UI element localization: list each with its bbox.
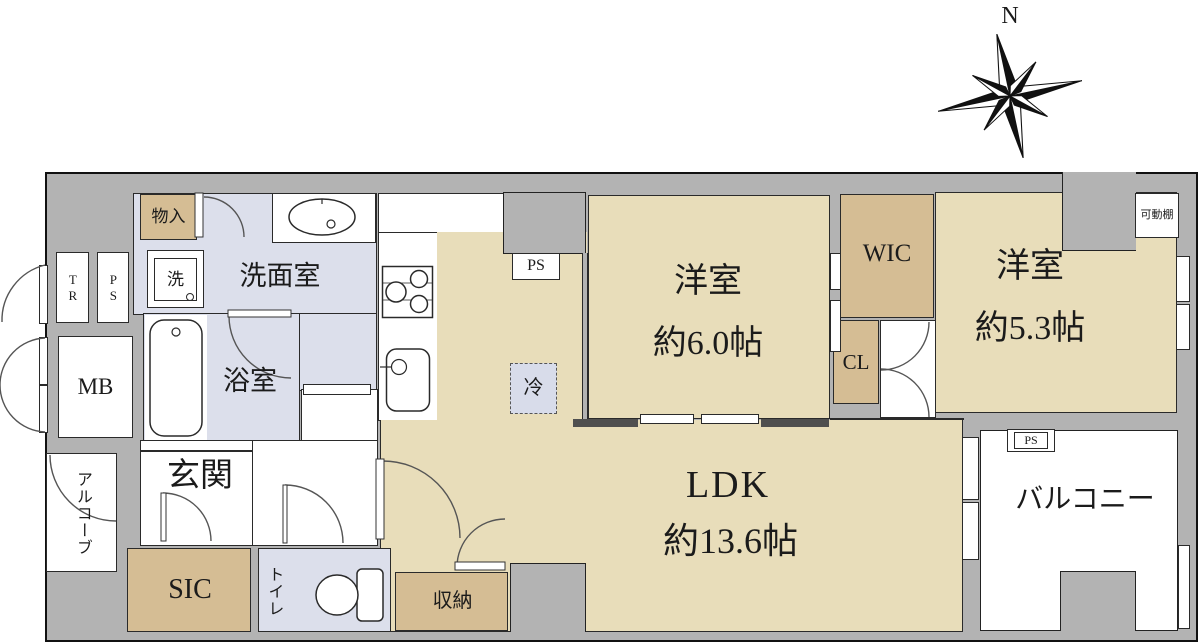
hatch-divider (39, 384, 48, 386)
bathtub-zone (145, 315, 207, 440)
cl-label: CL (833, 344, 879, 380)
bathroom-label: 浴室 (205, 366, 295, 396)
window-sash (1176, 256, 1190, 302)
washroom-area-lower (298, 313, 377, 391)
floor-plan: N 物入 TR PS MB 洗 洗面室 浴室 玄関 アルコーブ SIC トイレ … (0, 0, 1200, 644)
movable-shelf-label: 可動棚 (1135, 193, 1179, 238)
monoire-label: 物入 (140, 195, 197, 239)
storage-label: 収納 (400, 586, 505, 616)
toilet-label: トイレ (262, 554, 284, 628)
window-sash (1176, 304, 1190, 350)
trunk-room-label: TR (56, 252, 89, 323)
balcony-notch (1060, 571, 1136, 631)
vestibule (880, 320, 936, 418)
refrigerator-label: 冷 (510, 363, 557, 414)
wall-column-kitchen (503, 192, 586, 254)
wall-column-topright (1062, 172, 1136, 251)
compass-north-label: N (986, 2, 1034, 32)
entrance-label: 玄関 (150, 458, 250, 494)
wic-label: WIC (840, 236, 934, 272)
washer-label: 洗 (154, 258, 197, 301)
washroom-label: 洗面室 (200, 258, 360, 294)
bedroom2-size-label: 約5.3帖 (930, 310, 1130, 348)
entrance-step-line (140, 450, 253, 452)
compass-rose (925, 19, 1095, 173)
vanity-counter (272, 193, 376, 243)
bedroom1-size-label: 約6.0帖 (608, 325, 808, 363)
kitchen-counter-top (378, 193, 504, 233)
window-sash (962, 502, 979, 560)
meter-box-label: MB (58, 336, 133, 438)
sliding-door-panel (573, 419, 638, 427)
pipe-space-left-label: PS (97, 252, 129, 323)
sliding-door-panel (640, 414, 694, 424)
ldk-size-label: 約13.6帖 (628, 522, 833, 562)
balcony-label: バルコニー (1000, 484, 1170, 516)
alcove-label: アルコーブ (46, 456, 117, 570)
window-sash (962, 437, 979, 500)
washroom-door-opening (303, 384, 371, 395)
bedroom1-name-label: 洋室 (608, 263, 808, 301)
sliding-door-panel (701, 414, 759, 424)
corridor (252, 440, 378, 546)
bedroom1-floor (588, 195, 830, 419)
pipe-space-kitchen-label: PS (512, 253, 560, 280)
corridor-upper (301, 389, 378, 442)
exterior-hatch-leaf (39, 265, 48, 324)
balcony-partition (1178, 545, 1190, 629)
wall-line (830, 418, 964, 420)
wall-column-bottom (510, 563, 586, 632)
bedroom2-name-label: 洋室 (930, 248, 1130, 286)
kitchen-counter (378, 232, 438, 421)
sic-label: SIC (140, 572, 240, 608)
ldk-name-label: LDK (628, 466, 828, 506)
pipe-space-balcony-label: PS (1014, 432, 1048, 449)
sliding-door-panel (761, 419, 829, 427)
